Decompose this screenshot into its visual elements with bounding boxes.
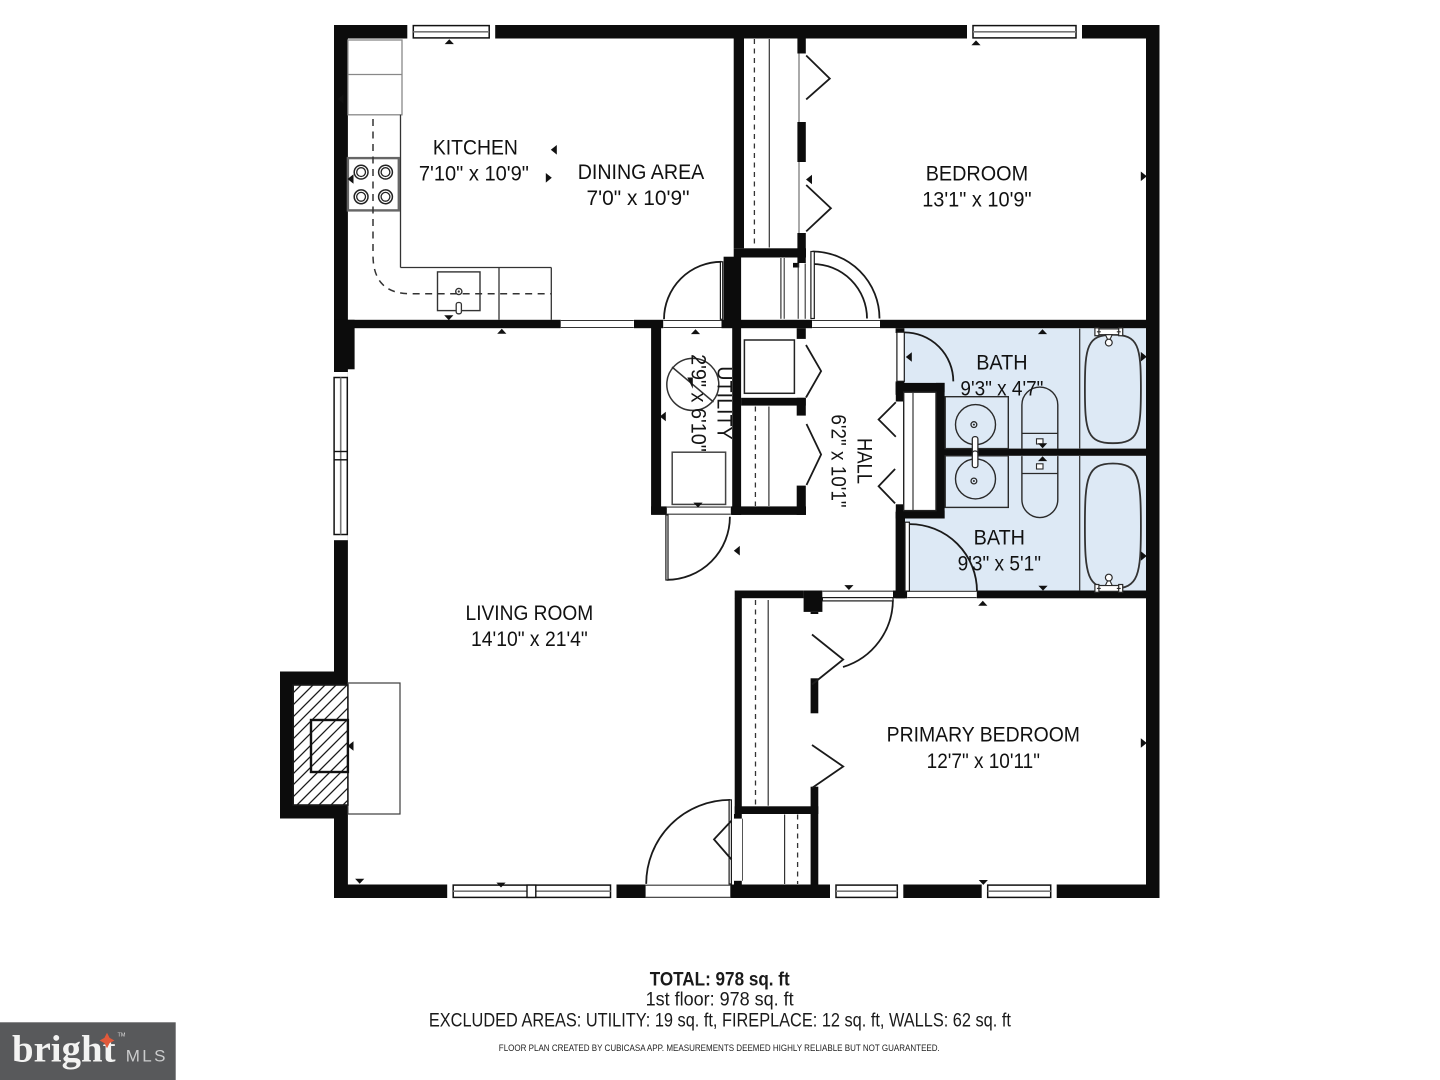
- svg-text:7'10" x 10'9": 7'10" x 10'9": [419, 162, 529, 185]
- svg-text:KITCHEN: KITCHEN: [433, 136, 518, 159]
- svg-text:9'3" x 4'7": 9'3" x 4'7": [960, 378, 1043, 401]
- svg-text:BATH: BATH: [976, 352, 1027, 375]
- svg-text:TOTAL: 978 sq. ft: TOTAL: 978 sq. ft: [650, 970, 791, 991]
- svg-text:14'10" x 21'4": 14'10" x 21'4": [471, 628, 588, 651]
- svg-text:6'2" x 10'1": 6'2" x 10'1": [827, 414, 850, 507]
- svg-text:1st floor: 978 sq. ft: 1st floor: 978 sq. ft: [646, 990, 795, 1011]
- svg-text:12'7" x 10'11": 12'7" x 10'11": [927, 750, 1040, 773]
- svg-text:BEDROOM: BEDROOM: [926, 162, 1028, 185]
- svg-text:PRIMARY BEDROOM: PRIMARY BEDROOM: [887, 724, 1080, 747]
- svg-text:UTILITY: UTILITY: [713, 366, 736, 439]
- svg-text:BATH: BATH: [974, 527, 1025, 550]
- svg-text:7'0" x 10'9": 7'0" x 10'9": [587, 187, 690, 210]
- svg-text:LIVING ROOM: LIVING ROOM: [466, 602, 594, 625]
- svg-text:TM: TM: [118, 1033, 126, 1039]
- svg-text:EXCLUDED AREAS: UTILITY: 19 sq: EXCLUDED AREAS: UTILITY: 19 sq. ft, FIRE…: [429, 1011, 1012, 1032]
- svg-text:FLOOR PLAN CREATED BY CUBICASA: FLOOR PLAN CREATED BY CUBICASA APP. MEAS…: [499, 1043, 940, 1054]
- svg-text:9'3" x 5'1": 9'3" x 5'1": [958, 553, 1041, 576]
- svg-text:MLS: MLS: [126, 1047, 168, 1066]
- svg-text:2'9" x 6'10": 2'9" x 6'10": [687, 354, 710, 452]
- svg-text:DINING AREA: DINING AREA: [578, 161, 705, 184]
- svg-text:bright: bright: [12, 1029, 116, 1071]
- svg-text:HALL: HALL: [853, 438, 876, 484]
- svg-text:13'1" x 10'9": 13'1" x 10'9": [922, 188, 1031, 211]
